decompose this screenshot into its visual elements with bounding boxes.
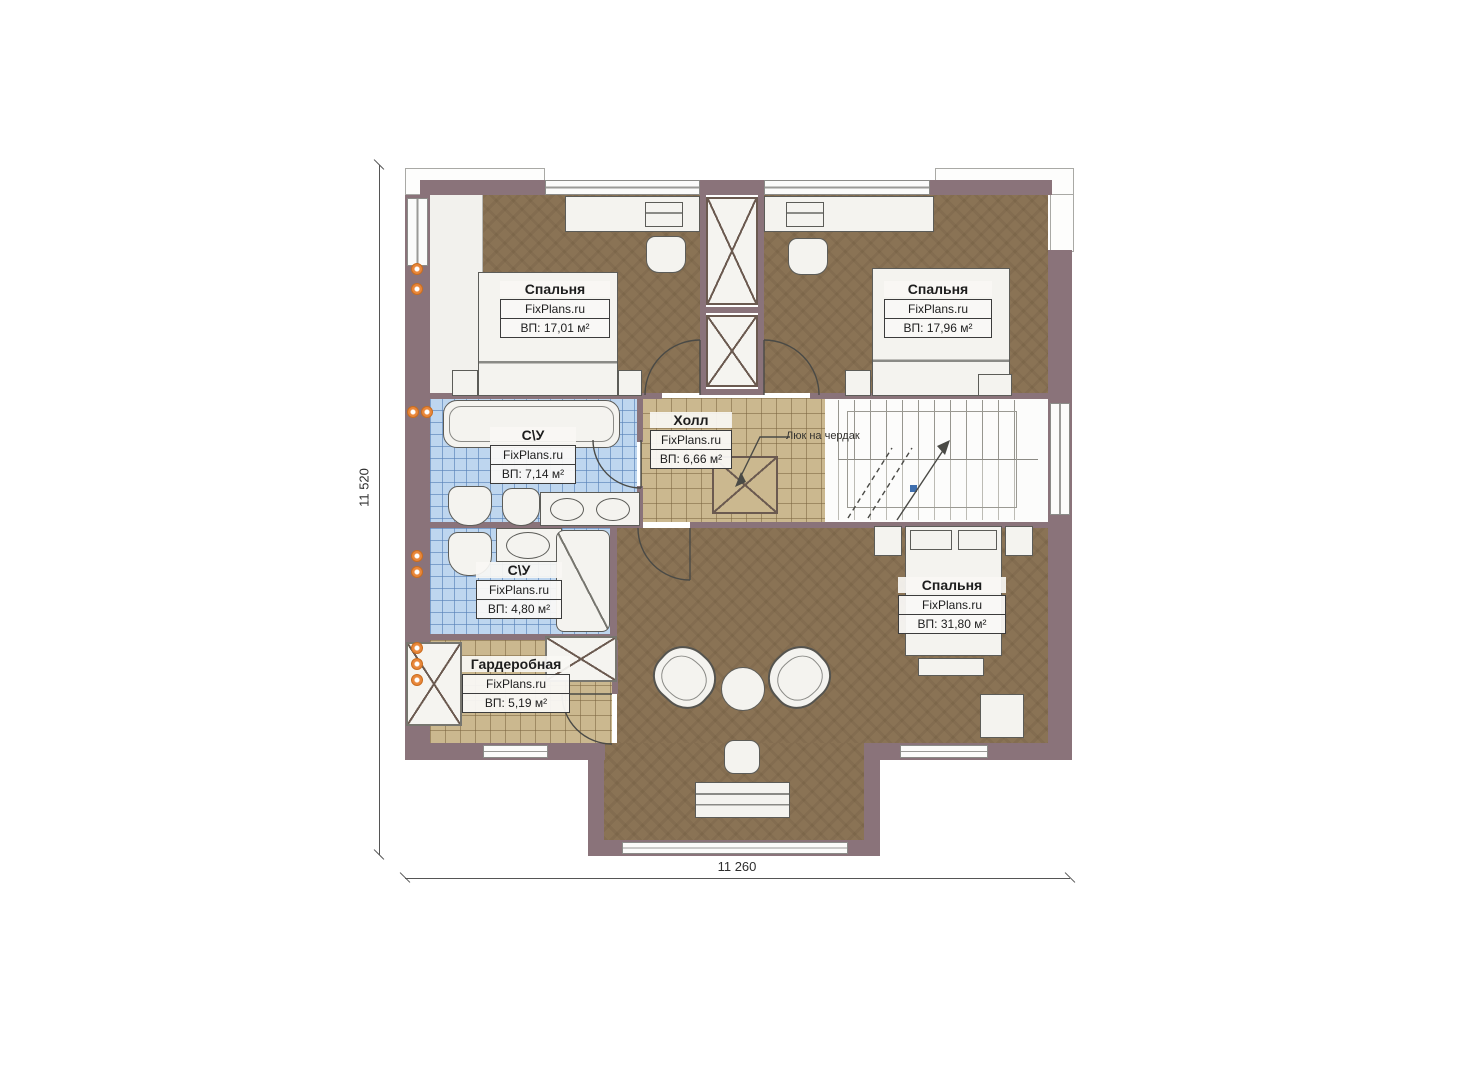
stool bbox=[724, 740, 760, 774]
room-name: С\У bbox=[476, 562, 562, 578]
room-stamp-box: FixPlans.ru ВП: 31,80 м² bbox=[898, 595, 1006, 634]
wall-segment bbox=[700, 389, 764, 395]
vent-dot bbox=[421, 406, 433, 418]
room-stamp-box: FixPlans.ru ВП: 6,66 м² bbox=[650, 430, 732, 469]
vent-dot bbox=[411, 642, 423, 654]
room-area: ВП: 4,80 м² bbox=[477, 599, 561, 618]
vent-shaft bbox=[706, 315, 758, 387]
nightstand bbox=[452, 370, 478, 396]
toilet bbox=[448, 486, 492, 526]
vent-shaft bbox=[706, 197, 758, 305]
wall-segment bbox=[700, 180, 764, 195]
room-name: Гардеробная bbox=[462, 656, 570, 672]
room-name: С\У bbox=[490, 427, 576, 443]
wall-segment bbox=[700, 307, 764, 313]
console-dresser bbox=[695, 782, 790, 818]
vent-dot bbox=[411, 283, 423, 295]
room-stamp-hall: Холл FixPlans.ru ВП: 6,66 м² bbox=[650, 412, 732, 469]
room-stamp-wardrobe: Гардеробная FixPlans.ru ВП: 5,19 м² bbox=[462, 656, 570, 713]
room-stamp-box: FixPlans.ru ВП: 5,19 м² bbox=[462, 674, 570, 713]
sink bbox=[550, 498, 584, 521]
window bbox=[545, 180, 700, 195]
nightstand bbox=[1005, 526, 1033, 556]
dimension-line-bottom bbox=[405, 878, 1070, 879]
attic-hatch-note: Люк на чердак bbox=[786, 430, 860, 442]
dimension-line-left bbox=[379, 165, 380, 855]
room-stamp-bedroom-2: Спальня FixPlans.ru ВП: 17,96 м² bbox=[884, 281, 992, 338]
shower-tray bbox=[556, 530, 610, 632]
nightstand bbox=[978, 374, 1012, 396]
room-area: ВП: 17,96 м² bbox=[885, 318, 991, 337]
room-brand: FixPlans.ru bbox=[885, 300, 991, 318]
pillow bbox=[958, 530, 997, 550]
sink bbox=[596, 498, 630, 521]
vent-dot bbox=[407, 406, 419, 418]
wall-segment bbox=[420, 180, 545, 195]
laptop-icon bbox=[786, 202, 824, 227]
room-stamp-bedroom-1: Спальня FixPlans.ru ВП: 17,01 м² bbox=[500, 281, 610, 338]
window bbox=[483, 745, 548, 758]
window bbox=[764, 180, 930, 195]
nightstand bbox=[874, 526, 902, 556]
room-stamp-bath-2: С\У FixPlans.ru ВП: 4,80 м² bbox=[476, 562, 562, 619]
room-name: Спальня bbox=[898, 577, 1006, 593]
round-table bbox=[721, 667, 765, 711]
vent-dot bbox=[411, 566, 423, 578]
floor-plan-canvas: Спальня FixPlans.ru ВП: 17,01 м² Спальня… bbox=[0, 0, 1474, 1080]
desk-chair bbox=[646, 236, 686, 273]
roof-outline-right-strip bbox=[1050, 194, 1074, 252]
bed-bench bbox=[918, 658, 984, 676]
room-stamp-bedroom-3: Спальня FixPlans.ru ВП: 31,80 м² bbox=[898, 577, 1006, 634]
room-stamp-box: FixPlans.ru ВП: 17,96 м² bbox=[884, 299, 992, 338]
room-stamp-box: FixPlans.ru ВП: 17,01 м² bbox=[500, 299, 610, 338]
room-brand: FixPlans.ru bbox=[491, 446, 575, 464]
room-area: ВП: 6,66 м² bbox=[651, 449, 731, 468]
wall-segment bbox=[610, 528, 617, 640]
vent-dot bbox=[411, 674, 423, 686]
nightstand bbox=[618, 370, 642, 396]
desk-chair bbox=[788, 238, 828, 275]
cabinet bbox=[980, 694, 1024, 738]
room-brand: FixPlans.ru bbox=[477, 581, 561, 599]
room-brand: FixPlans.ru bbox=[463, 675, 569, 693]
room-area: ВП: 17,01 м² bbox=[501, 318, 609, 337]
room-name: Спальня bbox=[884, 281, 992, 297]
room-name: Холл bbox=[650, 412, 732, 428]
room-area: ВП: 5,19 м² bbox=[463, 693, 569, 712]
bidet bbox=[502, 488, 540, 526]
vent-dot bbox=[411, 658, 423, 670]
room-name: Спальня bbox=[500, 281, 610, 297]
room-brand: FixPlans.ru bbox=[651, 431, 731, 449]
room-area: ВП: 7,14 м² bbox=[491, 464, 575, 483]
room-stamp-bath-1: С\У FixPlans.ru ВП: 7,14 м² bbox=[490, 427, 576, 484]
nightstand bbox=[845, 370, 871, 396]
room-stamp-box: FixPlans.ru ВП: 7,14 м² bbox=[490, 445, 576, 484]
window bbox=[900, 745, 988, 758]
stair-railing bbox=[847, 411, 1017, 508]
room-area: ВП: 31,80 м² bbox=[899, 614, 1005, 633]
room-brand: FixPlans.ru bbox=[501, 300, 609, 318]
vent-dot bbox=[411, 263, 423, 275]
window bbox=[622, 842, 848, 854]
room-brand: FixPlans.ru bbox=[899, 596, 1005, 614]
sink bbox=[506, 532, 550, 559]
wall-segment bbox=[637, 398, 643, 442]
stairwell bbox=[825, 398, 1048, 522]
room-stamp-box: FixPlans.ru ВП: 4,80 м² bbox=[476, 580, 562, 619]
dimension-label-left: 11 520 bbox=[357, 446, 372, 530]
wall-segment bbox=[930, 180, 1052, 195]
window bbox=[407, 198, 428, 266]
vent-dot bbox=[411, 550, 423, 562]
stair-node bbox=[910, 485, 917, 492]
window bbox=[1050, 403, 1070, 515]
dimension-label-bottom: 11 260 bbox=[695, 859, 779, 874]
bedroom-1-slope-strip bbox=[430, 195, 483, 393]
wall-segment bbox=[642, 393, 662, 399]
laptop-icon bbox=[645, 202, 683, 227]
pillow bbox=[910, 530, 952, 550]
